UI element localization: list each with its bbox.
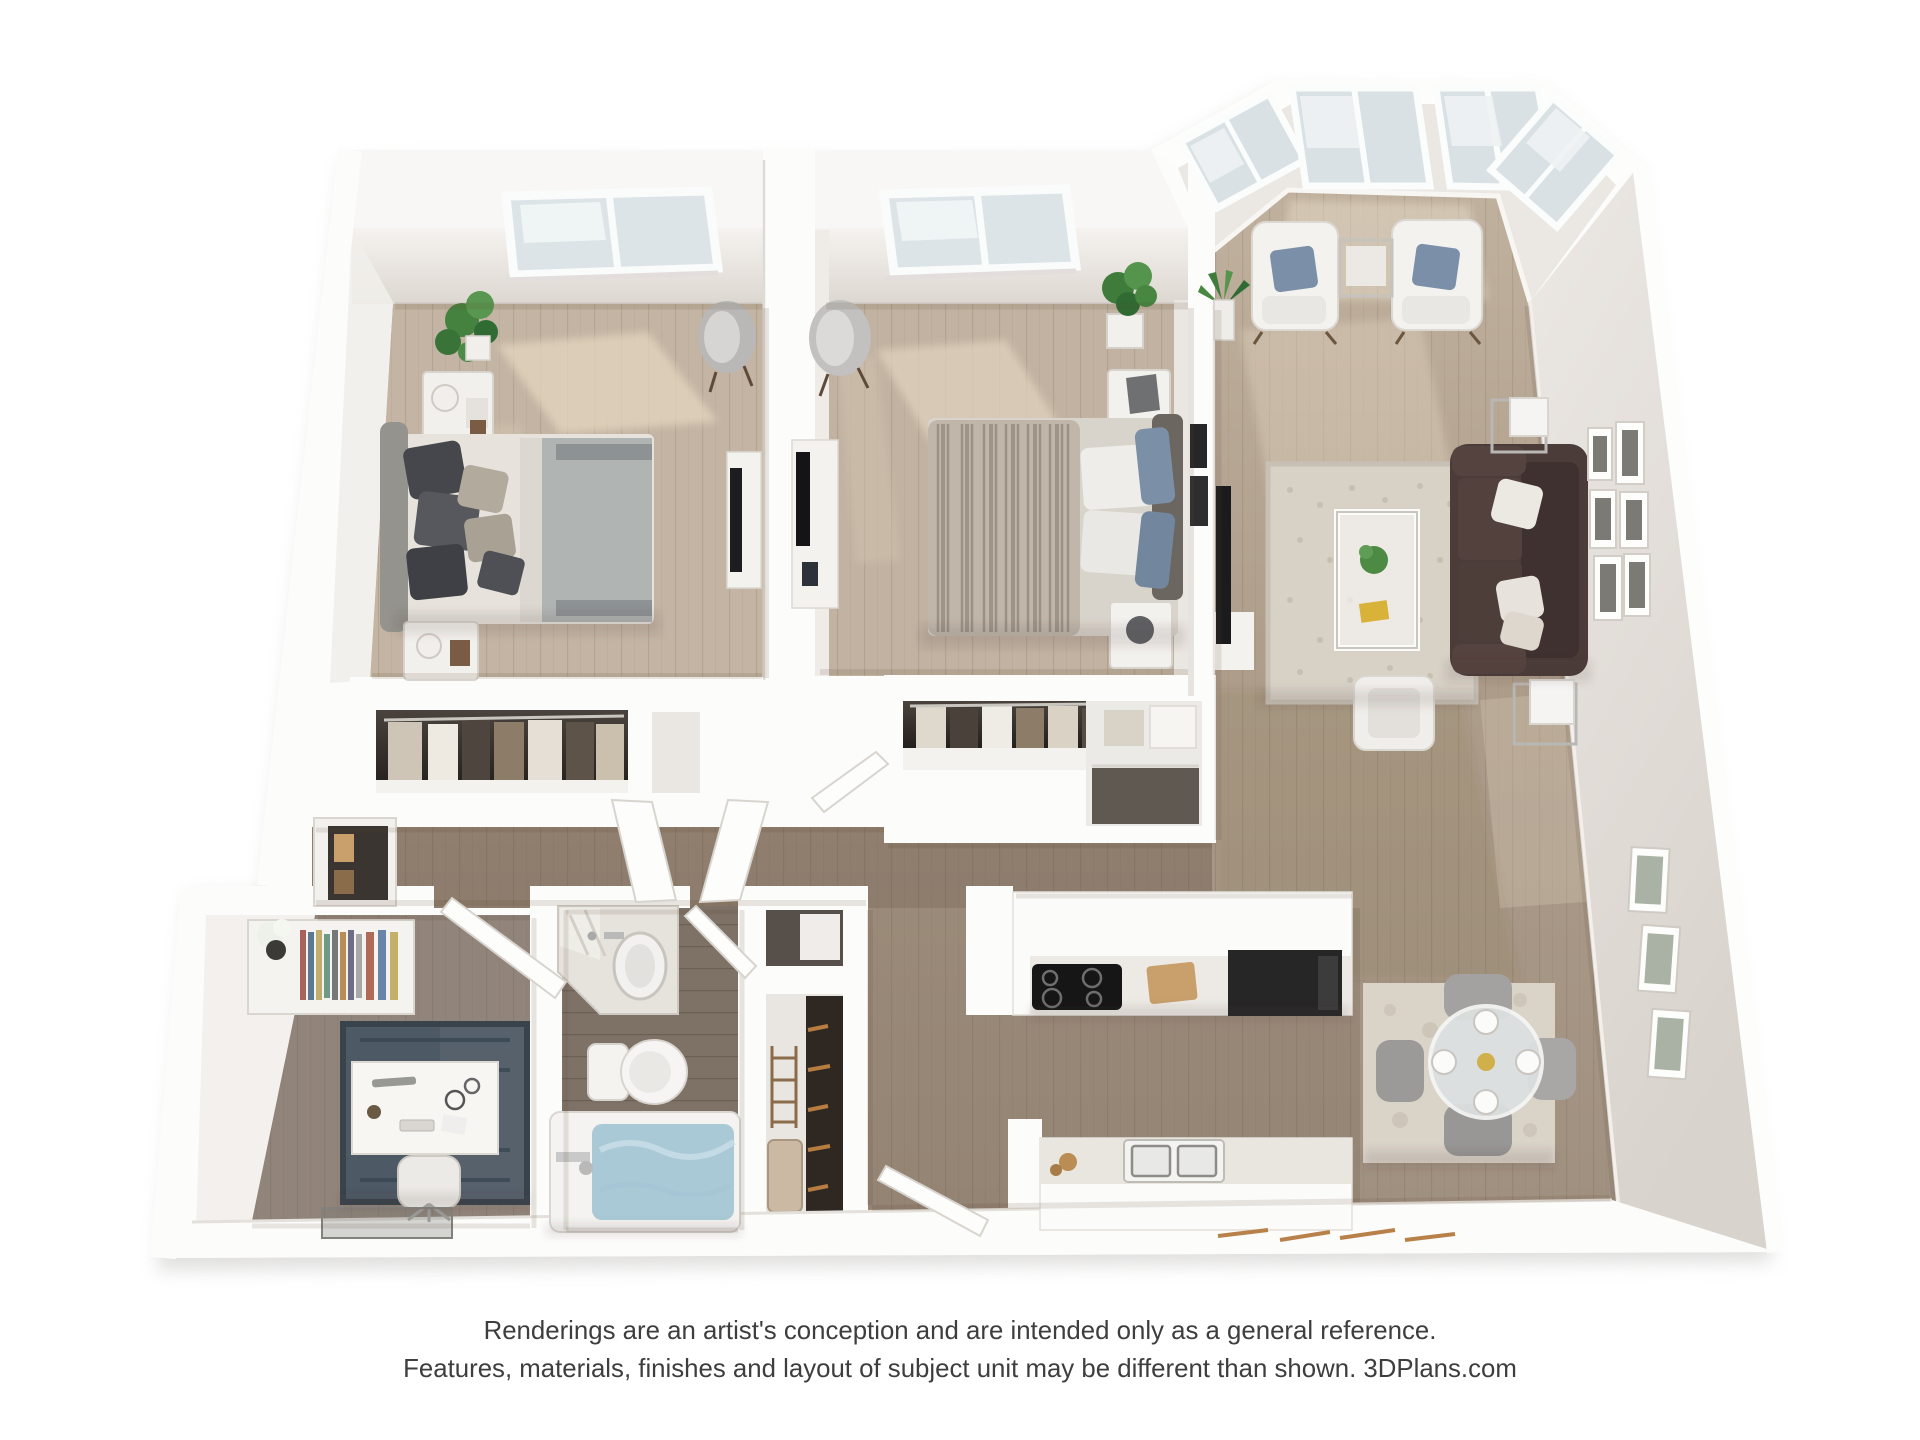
svg-text:Features, materials, finishes: Features, materials, finishes and layout…	[403, 1355, 1517, 1383]
svg-text:Renderings are an artist's con: Renderings are an artist's conception an…	[484, 1317, 1437, 1345]
